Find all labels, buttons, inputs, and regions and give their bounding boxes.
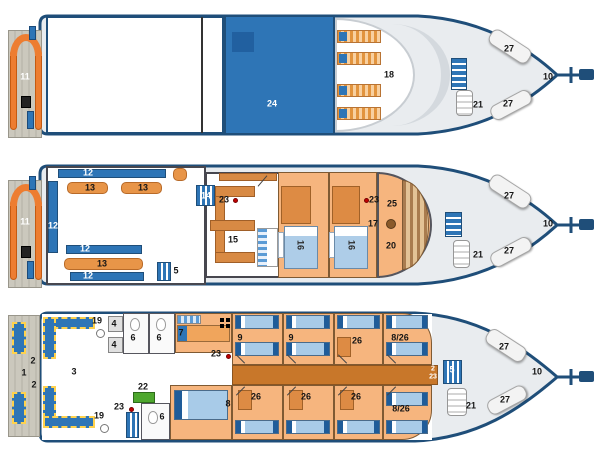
- bed: [174, 390, 228, 420]
- corridor-lower-label: 23: [429, 374, 437, 381]
- bunk-icon: [220, 318, 224, 322]
- ladder-icon: [447, 388, 467, 416]
- stairs-icon: [451, 58, 467, 90]
- bed: [286, 315, 330, 329]
- bench: [48, 181, 58, 253]
- bench-left-label: 12: [48, 222, 58, 231]
- extinguisher-dot: [226, 354, 231, 359]
- cabinet: [173, 168, 187, 181]
- locker-2-label: 4: [111, 341, 116, 350]
- sun-lounger: [337, 52, 381, 65]
- table-1-label: 13: [85, 184, 95, 193]
- cabin-26-top-label: 26: [352, 337, 362, 346]
- sun-lounger: [337, 84, 381, 97]
- compressor-label: 22: [138, 383, 148, 392]
- extinguisher-aft-label: 23: [114, 403, 124, 412]
- cabin-26c-label: 26: [351, 393, 361, 402]
- bow-bench-starboard-label: 27: [503, 100, 513, 109]
- cabin-826-bottom-label: 8/26: [392, 405, 410, 414]
- bench-mid-label: 12: [80, 245, 90, 254]
- bench: [12, 392, 26, 424]
- galley-wall: [219, 173, 277, 181]
- galley-counter: [215, 252, 255, 263]
- cabin-9a-label: 9: [237, 334, 242, 343]
- bench: [66, 245, 142, 254]
- helm-label: 17: [368, 220, 378, 229]
- bench-port-label: 12: [83, 169, 93, 178]
- stairs-icon: [126, 412, 139, 438]
- gear-box: [29, 26, 36, 40]
- bow-ladder-label: 21: [473, 251, 483, 260]
- bow-ladder-label: 21: [473, 101, 483, 110]
- bed: [286, 342, 330, 356]
- bow-label: 10: [543, 73, 553, 82]
- shelf: [177, 315, 201, 324]
- shower-head: [100, 424, 109, 433]
- cabin-826-top-label: 8/26: [391, 334, 409, 343]
- roof-label: 24: [267, 100, 277, 109]
- bow-bench-port-label: 27: [499, 343, 509, 352]
- bow-stairs-label: 5: [449, 366, 454, 375]
- toilet-1-label: 6: [130, 334, 135, 343]
- platform-ladder-fore-label: 2: [30, 357, 35, 366]
- extinguisher-dot: [129, 407, 134, 412]
- bed: [235, 315, 279, 329]
- sun-lounger: [337, 30, 381, 43]
- bench: [43, 317, 56, 359]
- shower-head: [96, 329, 105, 338]
- ladder-rail: [35, 50, 42, 130]
- toilet-icon: [148, 411, 158, 424]
- ladder-rail: [10, 50, 17, 130]
- stern-ladder-label: 11: [20, 218, 30, 227]
- toilet-icon: [156, 318, 166, 331]
- bow-bench-starboard-label: 27: [504, 247, 514, 256]
- bed: [337, 315, 380, 329]
- gear-box: [29, 176, 36, 190]
- corridor-upper-label: 2: [431, 366, 435, 373]
- compressor: [133, 392, 155, 403]
- ladder-rail: [10, 200, 17, 280]
- shower-fore-label: 19: [92, 317, 102, 326]
- wheelhouse-item-label: 25: [387, 200, 397, 209]
- fridge: [257, 228, 278, 267]
- wardrobe: [332, 186, 360, 224]
- bow-bench-port-label: 27: [504, 192, 514, 201]
- wardrobe: [238, 390, 252, 410]
- sun-lounger: [337, 107, 381, 120]
- ladder-rail: [35, 200, 42, 280]
- cabin-2-label: 16: [347, 240, 356, 250]
- bench: [43, 416, 95, 428]
- table-2-label: 13: [138, 184, 148, 193]
- bench: [12, 322, 26, 354]
- bed: [177, 325, 230, 342]
- gear-box: [27, 261, 34, 279]
- platform-ladder-aft-label: 2: [31, 381, 36, 390]
- cabin-1-label: 16: [296, 240, 305, 250]
- ladder-icon: [456, 90, 473, 116]
- wardrobe: [281, 186, 311, 224]
- stern-ladder-label: 11: [20, 73, 30, 82]
- extinguisher-dot: [233, 198, 238, 203]
- ladder-icon: [453, 240, 470, 268]
- bed: [337, 420, 380, 434]
- bed: [286, 420, 330, 434]
- toilet-icon: [130, 318, 140, 331]
- bow-label: 10: [543, 220, 553, 229]
- bow-bench-port-label: 27: [504, 45, 514, 54]
- bed: [386, 342, 428, 356]
- cabin-26a-label: 26: [251, 393, 261, 402]
- cabin-9b-label: 9: [288, 334, 293, 343]
- dive-deck-label: 3: [71, 368, 76, 377]
- gear-box: [27, 111, 34, 129]
- wheelhouse-item2-label: 20: [386, 242, 396, 251]
- wheelhouse-extinguisher-label: 23: [369, 196, 379, 205]
- galley-label: 15: [228, 236, 238, 245]
- galley-extinguisher-label: 23: [219, 196, 229, 205]
- platform-label: 1: [21, 369, 26, 378]
- cabin-7-label: 7: [178, 329, 183, 338]
- shower-aft-label: 19: [94, 412, 104, 421]
- sun-loungers-label: 18: [384, 71, 394, 80]
- salon-stairs-label: 5: [173, 267, 178, 276]
- helm-wheel: [386, 219, 396, 229]
- deck-plan-canvas: 1124182721271011121212121313131423155161…: [0, 0, 600, 450]
- toilet-3-label: 6: [159, 413, 164, 422]
- locker-1-label: 4: [111, 320, 116, 329]
- bench-starboard-label: 12: [83, 272, 93, 281]
- cabin-8-label: 8: [225, 400, 230, 409]
- corridor: [232, 365, 438, 385]
- extinguisher-fore-label: 23: [211, 350, 221, 359]
- stairs-icon: [157, 262, 171, 281]
- bed: [235, 420, 279, 434]
- gear-box: [21, 246, 31, 258]
- bed: [386, 315, 428, 329]
- gear-box: [21, 96, 31, 108]
- toilet-2-label: 6: [156, 334, 161, 343]
- bow-bench-starboard-label: 27: [500, 396, 510, 405]
- bow-ladder-label: 21: [466, 402, 476, 411]
- table-3-label: 13: [97, 260, 107, 269]
- bench: [58, 169, 166, 178]
- bow-label: 10: [532, 368, 542, 377]
- stairs-icon: [445, 212, 462, 237]
- cabin-26b-label: 26: [301, 393, 311, 402]
- bed: [235, 342, 279, 356]
- upper-deck-room: [46, 16, 224, 134]
- roof-hatch: [232, 32, 254, 52]
- room-divider: [201, 17, 203, 133]
- galley-counter: [210, 220, 255, 231]
- bed: [386, 420, 428, 434]
- bench: [70, 272, 144, 281]
- galley-stairs-label: 14: [201, 192, 211, 201]
